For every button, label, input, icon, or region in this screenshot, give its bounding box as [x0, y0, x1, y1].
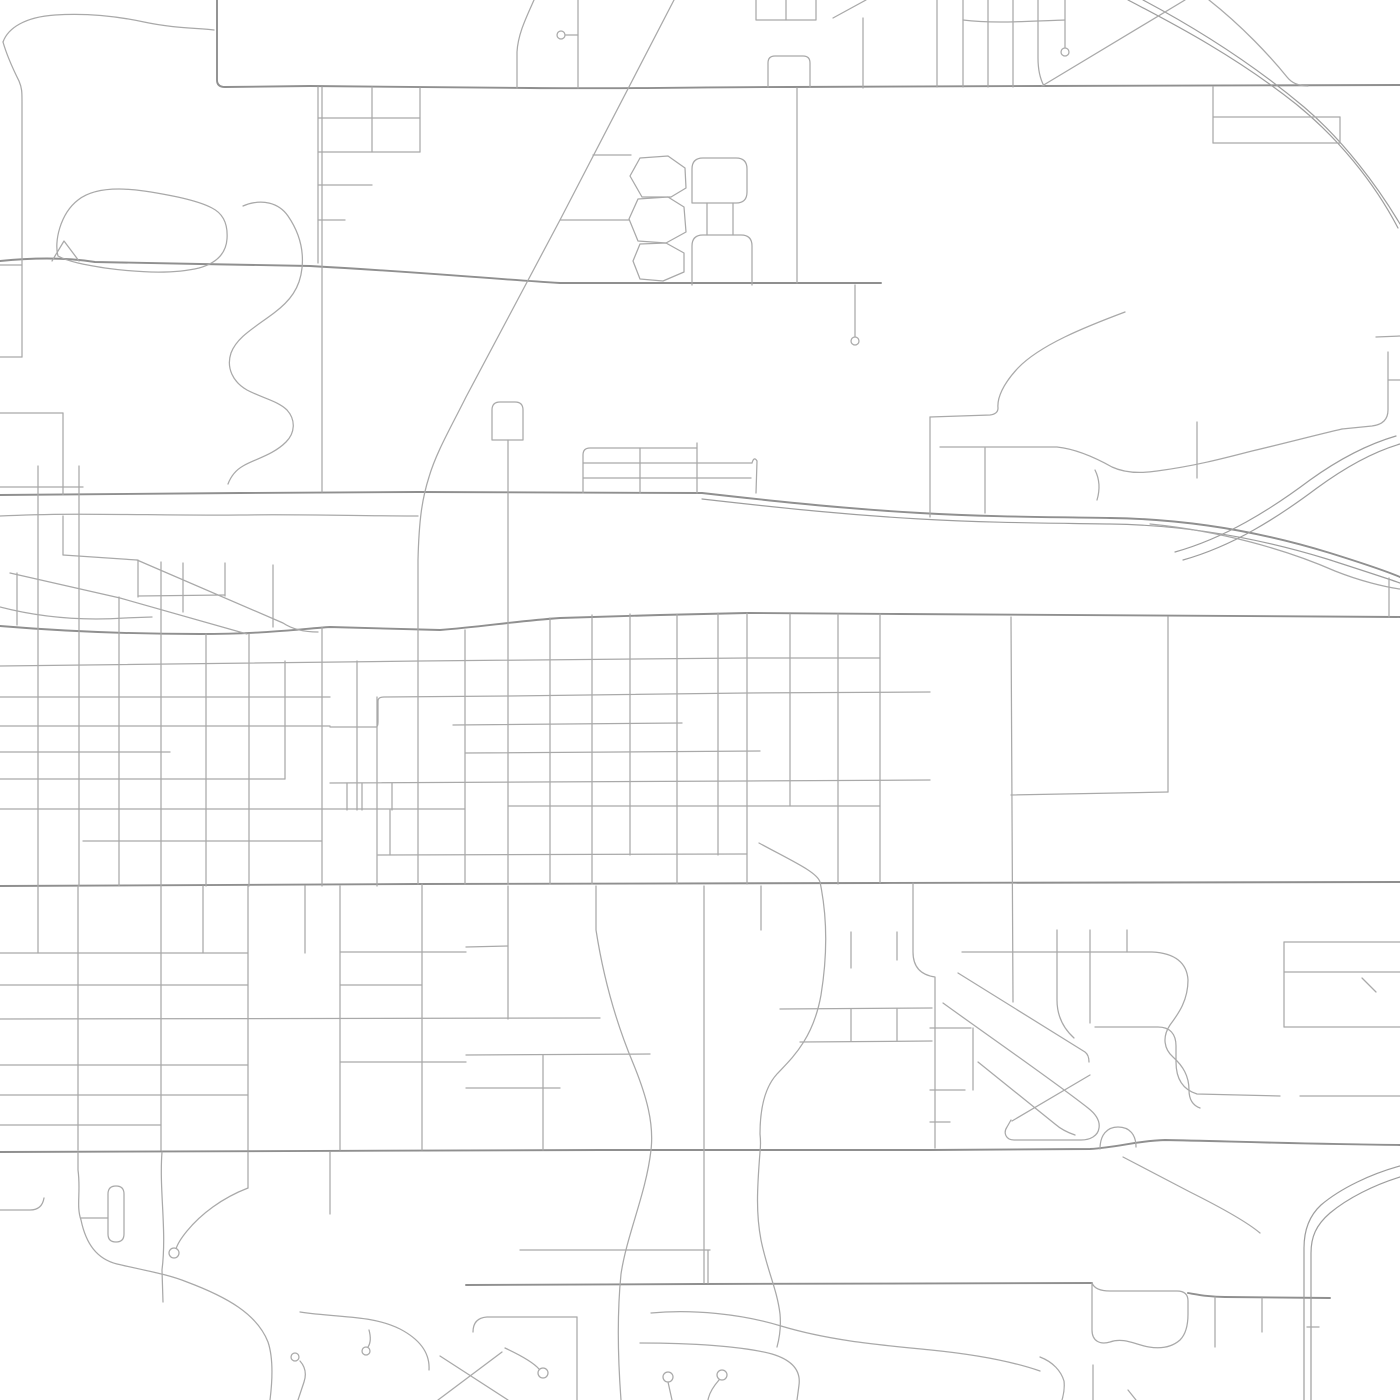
cul-de-sac-circle: [663, 1372, 673, 1382]
layer-arterial-roads: [0, 0, 1400, 1298]
arterial-roads-segment: [466, 1283, 1092, 1285]
streets-segment: [963, 20, 1065, 22]
cul-de-sac-circle: [851, 337, 859, 345]
streets-segment: [1011, 617, 1013, 1002]
streets-segment: [913, 883, 935, 1148]
streets-segment: [453, 723, 682, 725]
streets-segment: [466, 1054, 650, 1055]
streets-segment: [0, 1018, 600, 1019]
streets-segment: [505, 1348, 539, 1369]
streets-segment: [1095, 470, 1099, 500]
streets-segment: [780, 1008, 932, 1009]
streets-segment: [138, 595, 225, 596]
railways-segment: [1304, 1166, 1400, 1400]
streets-segment: [708, 1380, 719, 1400]
streets-segment: [492, 402, 523, 440]
streets-segment: [1209, 0, 1308, 86]
streets-segment: [78, 1152, 272, 1400]
streets-segment: [63, 555, 137, 560]
cul-de-sac-circle: [538, 1368, 548, 1378]
streets-segment: [930, 312, 1125, 417]
layer-streets: [0, 0, 1400, 1400]
streets-segment: [298, 1361, 305, 1400]
streets-segment: [3, 42, 22, 357]
railways-segment: [1143, 0, 1400, 224]
streets-segment: [228, 202, 302, 484]
streets-segment: [1123, 1157, 1260, 1233]
arterial-roads-segment: [0, 492, 702, 495]
streets-segment: [1040, 1357, 1064, 1400]
streets-segment: [473, 1317, 577, 1332]
streets-segment: [943, 1003, 1099, 1140]
arterial-roads-segment: [1188, 1293, 1330, 1298]
streets-segment: [465, 751, 760, 753]
streets-segment: [692, 158, 747, 203]
cul-de-sac-circle: [362, 1347, 370, 1355]
streets-segment: [633, 243, 684, 281]
streets-segment: [10, 573, 247, 634]
streets-segment: [629, 197, 686, 243]
cul-de-sac-circle: [557, 31, 565, 39]
railways-segment: [1128, 0, 1398, 228]
map-canvas[interactable]: [0, 0, 1400, 1400]
streets-segment: [833, 0, 866, 18]
streets-segment: [596, 886, 652, 1400]
streets-segment: [758, 843, 826, 1347]
streets-segment: [1042, 0, 1185, 86]
streets-segment: [1128, 1390, 1136, 1400]
streets-segment: [438, 1352, 502, 1400]
streets-segment: [692, 235, 752, 285]
streets-segment: [176, 1188, 248, 1249]
streets-segment: [0, 607, 152, 619]
streets-segment: [978, 1062, 1075, 1135]
streets-segment: [1376, 336, 1400, 337]
cul-de-sac-circle: [291, 1353, 299, 1361]
streets-segment: [466, 946, 508, 947]
streets-segment: [800, 1041, 932, 1042]
map-viewport: [0, 0, 1400, 1400]
railways-segment: [1175, 436, 1396, 552]
streets-segment: [1038, 0, 1044, 86]
streets-segment: [630, 156, 686, 197]
streets-segment: [0, 658, 880, 666]
railways-segment: [1311, 1177, 1400, 1400]
streets-segment: [668, 1382, 672, 1400]
streets-segment: [0, 1198, 44, 1210]
layer-railways: [702, 0, 1400, 1400]
arterial-roads-segment: [0, 882, 1400, 886]
streets-segment: [440, 1356, 508, 1400]
streets-segment: [962, 952, 1200, 1108]
streets-segment: [1095, 1027, 1280, 1096]
streets-segment: [752, 459, 757, 493]
streets-segment: [1092, 1283, 1188, 1348]
streets-segment: [1342, 352, 1388, 429]
streets-segment: [378, 854, 747, 855]
streets-segment: [300, 1312, 429, 1370]
streets-segment: [161, 1152, 163, 1302]
cul-de-sac-circle: [169, 1248, 179, 1258]
cul-de-sac-circle: [1061, 48, 1069, 56]
arterial-roads-segment: [702, 493, 1400, 577]
streets-segment: [368, 1330, 370, 1347]
streets-segment: [1057, 930, 1074, 1038]
layer-cul-de-sacs: [169, 31, 1069, 1382]
streets-segment: [940, 429, 1342, 472]
streets-segment: [517, 0, 534, 88]
cul-de-sac-circle: [717, 1370, 727, 1380]
streets-segment: [1011, 792, 1168, 795]
arterial-roads-segment: [217, 0, 1400, 88]
streets-segment: [651, 1312, 1040, 1371]
arterial-roads-segment: [0, 1140, 1400, 1152]
streets-segment: [3, 14, 214, 42]
railways-segment: [702, 499, 1400, 583]
streets-segment: [1150, 524, 1400, 589]
streets-segment: [768, 56, 810, 87]
streets-segment: [108, 1186, 124, 1242]
streets-segment: [958, 973, 1089, 1062]
streets-segment: [1362, 978, 1376, 992]
